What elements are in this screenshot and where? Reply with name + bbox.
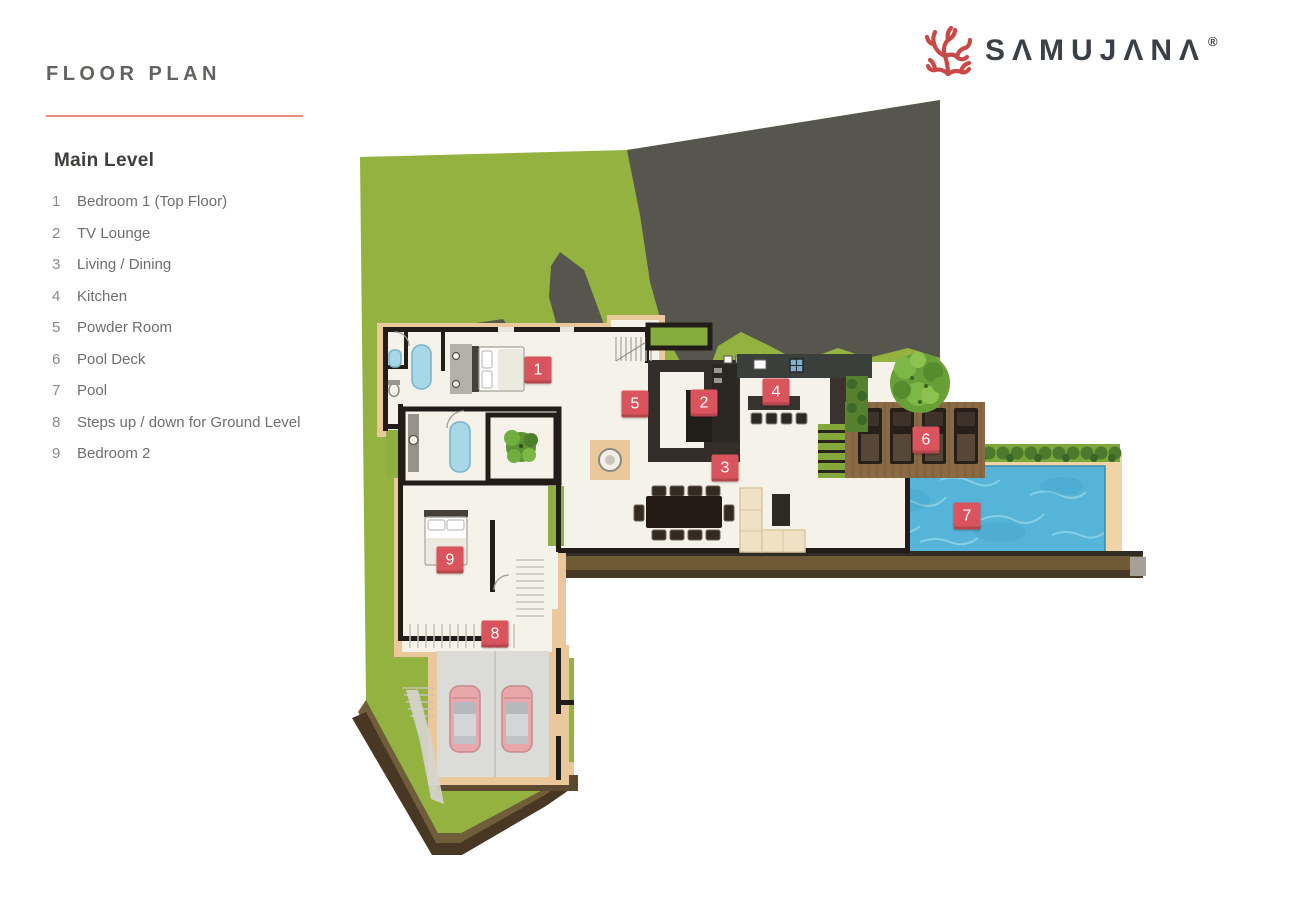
coral-icon: [924, 26, 972, 76]
garden-hedge-column: [846, 376, 868, 432]
brand-name: SΛMUJΛNΛ®: [985, 34, 1218, 68]
bed-2: [424, 510, 468, 565]
registered-mark: ®: [1208, 34, 1218, 49]
water-feature: [590, 440, 630, 480]
floor-plan-illustration: [0, 0, 1292, 900]
deck-steps: [818, 424, 846, 478]
car-1: [450, 686, 480, 752]
kitchen-island: [748, 396, 800, 410]
planter-slot: [648, 325, 710, 348]
brand-name-text: SΛMUJΛNΛ: [985, 34, 1206, 67]
bathroom-2: [403, 409, 559, 483]
court-tree: [504, 430, 538, 463]
bed-1: [450, 344, 524, 394]
car-2: [502, 686, 532, 752]
brand-logo: SΛMUJΛNΛ®: [924, 26, 1218, 76]
tree: [890, 352, 950, 413]
pool-hedge: [968, 444, 1122, 462]
retaining-wall: [563, 551, 1146, 578]
